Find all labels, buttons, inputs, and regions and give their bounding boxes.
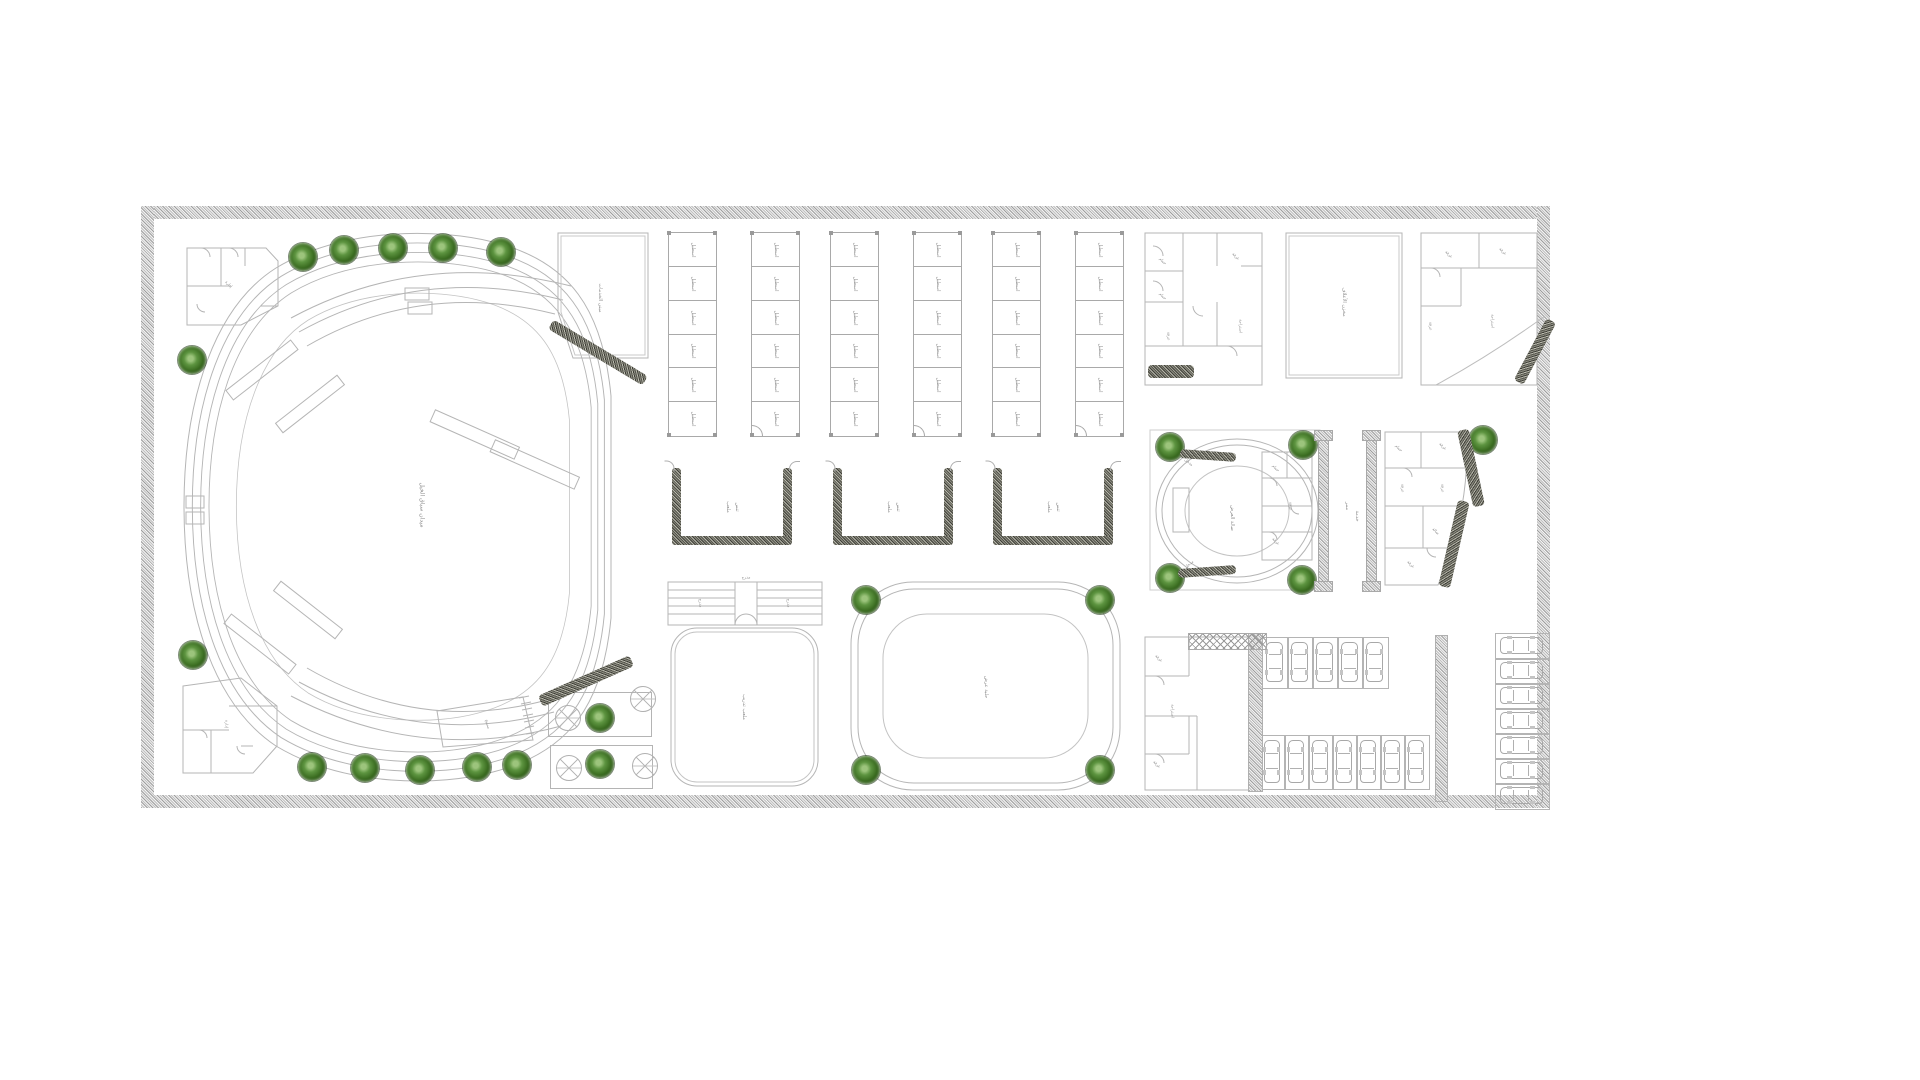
car-wheel bbox=[1507, 776, 1512, 779]
tree-icon bbox=[298, 753, 326, 781]
car-icon bbox=[1500, 762, 1543, 779]
column-post bbox=[875, 231, 879, 235]
stable-room: اسطبل bbox=[751, 334, 800, 370]
car-wheel bbox=[1380, 670, 1383, 675]
stable-room: اسطبل bbox=[992, 266, 1041, 302]
car-wheel bbox=[1263, 747, 1266, 752]
tennis-court-label: ملعب bbox=[886, 501, 892, 513]
car-wheel bbox=[1530, 801, 1535, 804]
car-icon bbox=[1291, 642, 1308, 682]
car-wheel bbox=[1407, 770, 1410, 775]
stable-room-label: اسطبل bbox=[1097, 344, 1103, 359]
car-wheel bbox=[1277, 747, 1280, 752]
car-wheel bbox=[1311, 747, 1314, 752]
tree-icon bbox=[487, 238, 515, 266]
car-wheel bbox=[1383, 770, 1386, 775]
court-hedge bbox=[833, 468, 842, 545]
car-icon bbox=[1360, 740, 1376, 783]
tennis-court: ملعبتنس bbox=[672, 468, 792, 545]
stable-room-label: اسطبل bbox=[1014, 310, 1020, 325]
column-post bbox=[713, 433, 717, 437]
tree-icon bbox=[330, 236, 358, 264]
stable-room-label: اسطبل bbox=[852, 242, 858, 257]
tree-icon bbox=[289, 243, 317, 271]
court-hedge bbox=[833, 536, 953, 545]
court-hedge bbox=[672, 468, 681, 545]
court-hedge-hook bbox=[950, 461, 961, 471]
stable-room-label: اسطبل bbox=[935, 276, 941, 291]
car-wheel bbox=[1365, 670, 1368, 675]
stable-room-label: اسطبل bbox=[935, 242, 941, 257]
car-wheel bbox=[1373, 770, 1376, 775]
car-wheel bbox=[1407, 747, 1410, 752]
car-wheel bbox=[1530, 761, 1535, 764]
column-post bbox=[667, 231, 671, 235]
stable-room: اسطبل bbox=[830, 334, 879, 370]
pilaster-cap bbox=[1362, 581, 1381, 592]
stable-room-label: اسطبل bbox=[935, 412, 941, 427]
car-icon bbox=[1500, 737, 1543, 754]
car-wheel bbox=[1359, 747, 1362, 752]
car-wheel bbox=[1355, 670, 1358, 675]
car-wheel bbox=[1507, 636, 1512, 639]
plan-label-round_hall: صالة العرض bbox=[1229, 505, 1235, 531]
stable-room-label: اسطبل bbox=[852, 344, 858, 359]
car-icon bbox=[1500, 637, 1543, 654]
column-post bbox=[667, 433, 671, 437]
car-wheel bbox=[1315, 649, 1318, 654]
tree-icon bbox=[1288, 566, 1316, 594]
car-wheel bbox=[1359, 770, 1362, 775]
stable-room-label: اسطبل bbox=[935, 310, 941, 325]
car-wheel bbox=[1530, 711, 1535, 714]
plan-label-grandstand: مدرج bbox=[742, 575, 751, 580]
stable-room-label: اسطبل bbox=[1014, 276, 1020, 291]
car-wheel bbox=[1397, 770, 1400, 775]
stable-room-label: اسطبل bbox=[1014, 378, 1020, 393]
car-wheel bbox=[1507, 676, 1512, 679]
tree-icon bbox=[852, 756, 880, 784]
stable-room-label: اسطبل bbox=[773, 242, 779, 257]
car-wheel bbox=[1263, 770, 1266, 775]
car-wheel bbox=[1287, 770, 1290, 775]
court-hedge bbox=[944, 468, 953, 545]
car-icon bbox=[1500, 712, 1543, 729]
tree-icon bbox=[379, 234, 407, 262]
foliage-band bbox=[1148, 365, 1194, 378]
plan-label-room: غرفة bbox=[1289, 502, 1294, 510]
car-icon bbox=[1408, 740, 1424, 783]
stable-room: اسطبل bbox=[751, 401, 800, 437]
stable-room: اسطبل bbox=[668, 300, 717, 336]
car-wheel bbox=[1287, 747, 1290, 752]
car-icon bbox=[1288, 740, 1304, 783]
tree-icon bbox=[178, 346, 206, 374]
plan-label-grandstand: مدرج bbox=[699, 599, 704, 608]
stable-room-label: اسطبل bbox=[690, 242, 696, 257]
stable-room: اسطبل bbox=[992, 334, 1041, 370]
access-paths bbox=[224, 340, 579, 674]
court-hedge bbox=[993, 468, 1002, 545]
column-post bbox=[750, 433, 754, 437]
stable-room: اسطبل bbox=[830, 367, 879, 403]
car-wheel bbox=[1530, 751, 1535, 754]
stable-room: اسطبل bbox=[1075, 266, 1124, 302]
tennis-court: ملعبتنس bbox=[993, 468, 1113, 545]
column-post bbox=[1120, 433, 1124, 437]
plan-label-rest: استراحة bbox=[1239, 319, 1244, 333]
stable-room-label: اسطبل bbox=[773, 412, 779, 427]
stable-room: اسطبل bbox=[830, 232, 879, 268]
column-post bbox=[912, 433, 916, 437]
tennis-court-label: تنس bbox=[895, 502, 901, 511]
tree-icon bbox=[1289, 431, 1317, 459]
plan-label-hall_services: مبنى الخدمات bbox=[597, 283, 603, 312]
column-post bbox=[829, 231, 833, 235]
column-post bbox=[796, 231, 800, 235]
car-wheel bbox=[1315, 670, 1318, 675]
car-wheel bbox=[1507, 651, 1512, 654]
car-wheel bbox=[1507, 701, 1512, 704]
stable-room: اسطبل bbox=[1075, 401, 1124, 437]
tennis-court: ملعبتنس bbox=[833, 468, 953, 545]
stable-room-label: اسطبل bbox=[852, 378, 858, 393]
car-icon bbox=[1266, 642, 1283, 682]
pilaster-cap bbox=[1314, 581, 1333, 592]
tree-icon bbox=[429, 234, 457, 262]
plan-label-rest: استراحة bbox=[1171, 704, 1176, 718]
stable-room-label: اسطبل bbox=[690, 344, 696, 359]
car-wheel bbox=[1530, 786, 1535, 789]
fountain-planter bbox=[556, 755, 582, 781]
car-wheel bbox=[1311, 770, 1314, 775]
stable-room-label: اسطبل bbox=[1014, 344, 1020, 359]
column-post bbox=[958, 231, 962, 235]
car-icon bbox=[1366, 642, 1383, 682]
car-wheel bbox=[1383, 747, 1386, 752]
stable-room-label: اسطبل bbox=[773, 344, 779, 359]
car-wheel bbox=[1290, 649, 1293, 654]
tree-icon bbox=[852, 586, 880, 614]
stable-room-label: اسطبل bbox=[1097, 276, 1103, 291]
car-wheel bbox=[1365, 649, 1368, 654]
car-wheel bbox=[1305, 670, 1308, 675]
car-wheel bbox=[1355, 649, 1358, 654]
car-wheel bbox=[1421, 770, 1424, 775]
stable-room: اسطبل bbox=[913, 367, 962, 403]
tennis-court-label: ملعب bbox=[725, 501, 731, 513]
paved-strip bbox=[1248, 633, 1263, 792]
car-wheel bbox=[1301, 770, 1304, 775]
stable-room: اسطبل bbox=[1075, 232, 1124, 268]
stable-room: اسطبل bbox=[1075, 367, 1124, 403]
column-post bbox=[829, 433, 833, 437]
car-icon bbox=[1312, 740, 1328, 783]
column-post bbox=[1074, 433, 1078, 437]
car-wheel bbox=[1335, 770, 1338, 775]
column-post bbox=[912, 231, 916, 235]
column-post bbox=[1074, 231, 1078, 235]
plan-label-rest: استراحة bbox=[1491, 314, 1496, 328]
car-wheel bbox=[1305, 649, 1308, 654]
tennis-court-label: ملعب bbox=[1046, 501, 1052, 513]
car-wheel bbox=[1280, 649, 1283, 654]
fountain-planter bbox=[632, 753, 658, 779]
stable-room-label: اسطبل bbox=[852, 276, 858, 291]
car-wheel bbox=[1530, 701, 1535, 704]
arena-bleachers bbox=[291, 273, 571, 740]
stable-room: اسطبل bbox=[913, 300, 962, 336]
column-post bbox=[991, 433, 995, 437]
car-wheel bbox=[1349, 770, 1352, 775]
stable-room-label: اسطبل bbox=[1097, 310, 1103, 325]
plan-label-room: غرفة bbox=[1401, 484, 1406, 492]
tree-icon bbox=[351, 754, 379, 782]
court-hedge-hook bbox=[789, 461, 800, 471]
car-wheel bbox=[1530, 726, 1535, 729]
car-wheel bbox=[1530, 686, 1535, 689]
car-wheel bbox=[1530, 651, 1535, 654]
car-wheel bbox=[1265, 670, 1268, 675]
plan-label-left_court: ملعب تدريب bbox=[741, 694, 747, 720]
column-post bbox=[796, 433, 800, 437]
column-post bbox=[1037, 231, 1041, 235]
car-wheel bbox=[1530, 676, 1535, 679]
stable-room-label: اسطبل bbox=[690, 412, 696, 427]
stable-room: اسطبل bbox=[1075, 334, 1124, 370]
car-wheel bbox=[1330, 649, 1333, 654]
pilaster-wall bbox=[1318, 432, 1329, 590]
column-post bbox=[713, 231, 717, 235]
column-post bbox=[958, 433, 962, 437]
column-post bbox=[991, 231, 995, 235]
car-icon bbox=[1500, 687, 1543, 704]
stable-room: اسطبل bbox=[668, 367, 717, 403]
car-wheel bbox=[1530, 661, 1535, 664]
paved-strip bbox=[1435, 635, 1448, 802]
stable-room-label: اسطبل bbox=[852, 310, 858, 325]
car-wheel bbox=[1530, 776, 1535, 779]
plan-label-feed_store: مخزن الأعلاف bbox=[1341, 287, 1347, 316]
car-wheel bbox=[1507, 661, 1512, 664]
car-wheel bbox=[1530, 636, 1535, 639]
stable-room: اسطبل bbox=[992, 367, 1041, 403]
pilaster-cap bbox=[1314, 430, 1333, 441]
stable-room: اسطبل bbox=[751, 367, 800, 403]
stable-room: اسطبل bbox=[668, 334, 717, 370]
car-wheel bbox=[1507, 726, 1512, 729]
stable-room-label: اسطبل bbox=[1097, 412, 1103, 427]
car-icon bbox=[1500, 787, 1543, 804]
stable-room-label: اسطبل bbox=[1097, 242, 1103, 257]
car-wheel bbox=[1335, 747, 1338, 752]
tree-icon bbox=[179, 641, 207, 669]
car-icon bbox=[1500, 662, 1543, 679]
stable-room-label: اسطبل bbox=[935, 378, 941, 393]
tennis-court-label: تنس bbox=[1055, 502, 1061, 511]
court-hedge bbox=[1104, 468, 1113, 545]
car-wheel bbox=[1277, 770, 1280, 775]
column-post bbox=[1037, 433, 1041, 437]
tree-icon bbox=[503, 751, 531, 779]
car-wheel bbox=[1325, 770, 1328, 775]
tree-icon bbox=[1086, 586, 1114, 614]
stable-room: اسطبل bbox=[830, 401, 879, 437]
car-wheel bbox=[1373, 747, 1376, 752]
plan-label-corridor2: خدمة bbox=[1354, 510, 1360, 521]
car-wheel bbox=[1507, 686, 1512, 689]
car-wheel bbox=[1507, 751, 1512, 754]
court-hedge bbox=[672, 536, 792, 545]
grandstand bbox=[668, 582, 822, 625]
stable-room-label: اسطبل bbox=[690, 276, 696, 291]
stable-room: اسطبل bbox=[830, 300, 879, 336]
car-wheel bbox=[1340, 649, 1343, 654]
plan-label-grandstand: مدرج bbox=[787, 599, 792, 608]
car-wheel bbox=[1330, 670, 1333, 675]
car-wheel bbox=[1290, 670, 1293, 675]
car-icon bbox=[1336, 740, 1352, 783]
stable-room: اسطبل bbox=[913, 266, 962, 302]
stable-room: اسطبل bbox=[913, 334, 962, 370]
plan-label-room: غرفة bbox=[1167, 332, 1172, 340]
pilaster-wall bbox=[1366, 432, 1377, 590]
tennis-court-label: تنس bbox=[734, 502, 740, 511]
car-wheel bbox=[1280, 670, 1283, 675]
building-bottom-left bbox=[183, 678, 277, 773]
stable-room: اسطبل bbox=[830, 266, 879, 302]
stable-room-label: اسطبل bbox=[690, 378, 696, 393]
stable-room: اسطبل bbox=[992, 232, 1041, 268]
pergola-trellis bbox=[1188, 633, 1267, 650]
car-wheel bbox=[1421, 747, 1424, 752]
stable-room: اسطبل bbox=[751, 232, 800, 268]
car-icon bbox=[1264, 740, 1280, 783]
plan-label-room: غرفة bbox=[1441, 484, 1446, 492]
car-wheel bbox=[1380, 649, 1383, 654]
stable-room: اسطبل bbox=[992, 401, 1041, 437]
car-wheel bbox=[1507, 761, 1512, 764]
stable-room-label: اسطبل bbox=[935, 344, 941, 359]
building-top-left bbox=[187, 248, 278, 325]
tree-icon bbox=[1086, 756, 1114, 784]
column-post bbox=[1120, 231, 1124, 235]
court-hedge bbox=[993, 536, 1113, 545]
stable-room: اسطبل bbox=[913, 401, 962, 437]
fountain-planter bbox=[555, 705, 581, 731]
column-post bbox=[875, 433, 879, 437]
fountain-planter bbox=[630, 686, 656, 712]
site-plan-drawing: اسطبلاسطبلاسطبلاسطبلاسطبلاسطبلاسطبلاسطبل… bbox=[141, 206, 1550, 808]
stable-room-label: اسطبل bbox=[852, 412, 858, 427]
stable-room: اسطبل bbox=[992, 300, 1041, 336]
tree-icon bbox=[406, 756, 434, 784]
plan-label-office: إدارة bbox=[225, 720, 230, 728]
stable-room: اسطبل bbox=[751, 300, 800, 336]
car-wheel bbox=[1349, 747, 1352, 752]
court-hedge-hook bbox=[1110, 461, 1121, 471]
court-hedge bbox=[783, 468, 792, 545]
plan-label-oval_court: حلبة عرض bbox=[983, 676, 989, 698]
stable-room-label: اسطبل bbox=[1014, 242, 1020, 257]
plan-label-arena: ميدان سباق الخيل bbox=[419, 482, 426, 527]
stable-room: اسطبل bbox=[913, 232, 962, 268]
car-wheel bbox=[1507, 786, 1512, 789]
stable-room-label: اسطبل bbox=[773, 378, 779, 393]
car-icon bbox=[1384, 740, 1400, 783]
tree-icon bbox=[1156, 433, 1184, 461]
car-wheel bbox=[1301, 747, 1304, 752]
tree-icon bbox=[463, 753, 491, 781]
car-wheel bbox=[1507, 801, 1512, 804]
stable-room-label: اسطبل bbox=[1014, 412, 1020, 427]
stable-room-label: اسطبل bbox=[1097, 378, 1103, 393]
car-wheel bbox=[1507, 711, 1512, 714]
plan-label-corridor1: ممر bbox=[1344, 502, 1350, 510]
stable-room-label: اسطبل bbox=[773, 276, 779, 291]
car-wheel bbox=[1530, 736, 1535, 739]
car-wheel bbox=[1507, 736, 1512, 739]
car-wheel bbox=[1340, 670, 1343, 675]
stable-room: اسطبل bbox=[751, 266, 800, 302]
plan-label-room: غرفة bbox=[1429, 322, 1434, 330]
stable-room-label: اسطبل bbox=[773, 310, 779, 325]
car-icon bbox=[1316, 642, 1333, 682]
stable-room: اسطبل bbox=[1075, 300, 1124, 336]
column-post bbox=[750, 231, 754, 235]
car-wheel bbox=[1325, 747, 1328, 752]
pilaster-cap bbox=[1362, 430, 1381, 441]
car-wheel bbox=[1397, 747, 1400, 752]
stable-room: اسطبل bbox=[668, 266, 717, 302]
stable-room: اسطبل bbox=[668, 232, 717, 268]
car-icon bbox=[1341, 642, 1358, 682]
stable-room: اسطبل bbox=[668, 401, 717, 437]
stable-room-label: اسطبل bbox=[690, 310, 696, 325]
building-top-complex bbox=[1145, 233, 1262, 385]
